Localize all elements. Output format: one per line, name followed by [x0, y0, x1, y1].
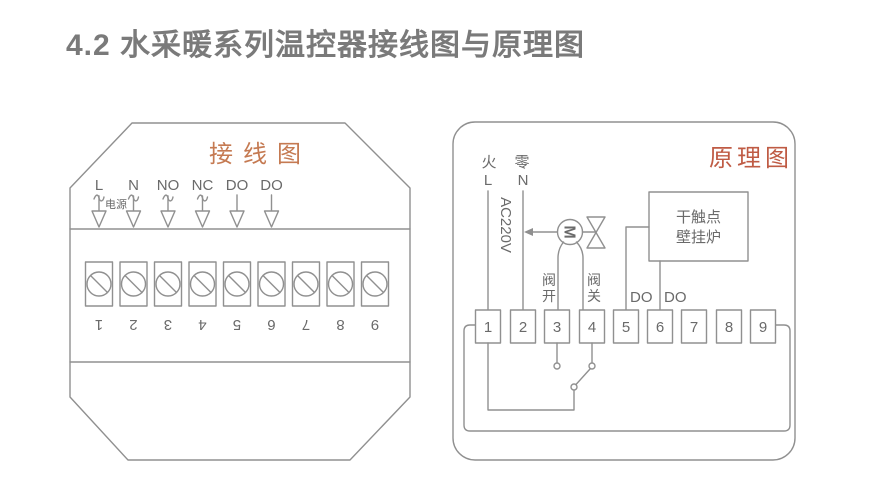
s-terminal-2: 2 [519, 319, 527, 336]
voltage-label: AC220V [497, 197, 514, 253]
pin-label-l: L [95, 177, 103, 194]
motor-symbol: M [558, 220, 583, 245]
terminal-number-9: 9 [371, 316, 379, 333]
live-label-cn: 火 [481, 154, 496, 171]
wiring-diagram: 接线图 L N NO NC DO DO 电源 [60, 115, 420, 470]
relay-switch [488, 343, 595, 410]
terminal-screw-5 [224, 262, 251, 306]
motor-letter: M [561, 225, 578, 238]
boiler-label-line2: 壁挂炉 [676, 229, 721, 246]
terminal-screw-3 [155, 262, 182, 306]
s-terminal-1: 1 [484, 319, 492, 336]
thermostat-octagon-outline [70, 123, 410, 460]
wire-arrow-nc [196, 195, 210, 227]
wire-arrow-do1 [230, 195, 244, 227]
terminal-number-7: 7 [302, 316, 310, 333]
pin-label-nc: NC [192, 177, 214, 194]
contact4-terminal [589, 363, 595, 369]
terminal-screw-1 [86, 262, 113, 306]
pin-label-do1: DO [226, 177, 249, 194]
terminal-number-2: 2 [129, 316, 137, 333]
terminal-screw-6 [258, 262, 285, 306]
wire-arrow-no [161, 195, 175, 227]
terminal-number-3: 3 [164, 316, 172, 333]
schematic-title: 原理图 [709, 145, 793, 172]
terminal-number-5: 5 [233, 316, 241, 333]
valve-open-label: 阀开 [542, 272, 556, 304]
valve-open-wire [558, 242, 564, 311]
do-label-right: DO [664, 289, 687, 306]
terminal-number-1: 1 [95, 316, 103, 333]
common-wire [488, 343, 574, 410]
valve-close-label: 阀关 [587, 272, 601, 304]
terminal-screw-8 [327, 262, 354, 306]
terminal-number-6: 6 [267, 316, 275, 333]
wiring-title: 接线图 [209, 141, 311, 168]
s-terminal-5: 5 [622, 319, 630, 336]
pin-label-n: N [128, 177, 139, 194]
wire-arrow-n [127, 195, 141, 227]
switch-lever [576, 369, 590, 385]
s-terminal-8: 8 [725, 319, 733, 336]
boiler-box: 干触点 壁挂炉 [649, 192, 748, 261]
valve-close-wire [577, 242, 584, 311]
terminal-number-4: 4 [198, 316, 206, 333]
terminal-screw-4 [189, 262, 216, 306]
power-label: 电源 [105, 197, 127, 211]
s-terminal-7: 7 [690, 319, 698, 336]
s-terminal-6: 6 [656, 319, 664, 336]
boiler-label-line1: 干触点 [676, 209, 721, 226]
wire-arrow-do2 [265, 195, 279, 227]
s-terminal-4: 4 [588, 319, 596, 336]
terminal-screw-7 [293, 262, 320, 306]
terminal-screw-9 [362, 262, 389, 306]
schematic-diagram: 原理图 火 L 零 N AC220V M 阀开 阀关 干触点 壁挂炉 DO DO [450, 115, 810, 475]
terminal-number-8: 8 [336, 316, 344, 333]
contact3-terminal [554, 363, 560, 369]
do-label-left: DO [630, 289, 653, 306]
neutral-label-cn: 零 [514, 154, 529, 171]
s-terminal-9: 9 [759, 319, 767, 336]
live-label-l: L [484, 172, 492, 189]
wire-arrow-l [92, 195, 106, 227]
pin-label-do2: DO [260, 177, 283, 194]
s-terminal-3: 3 [553, 319, 561, 336]
pin-label-no: NO [157, 177, 180, 194]
terminal-screw-2 [120, 262, 147, 306]
neutral-label-n: N [518, 172, 529, 189]
schematic-terminal-strip: 1 2 3 4 5 6 7 8 9 [476, 310, 776, 343]
page-title: 4.2 水采暖系列温控器接线图与原理图 [66, 26, 585, 66]
